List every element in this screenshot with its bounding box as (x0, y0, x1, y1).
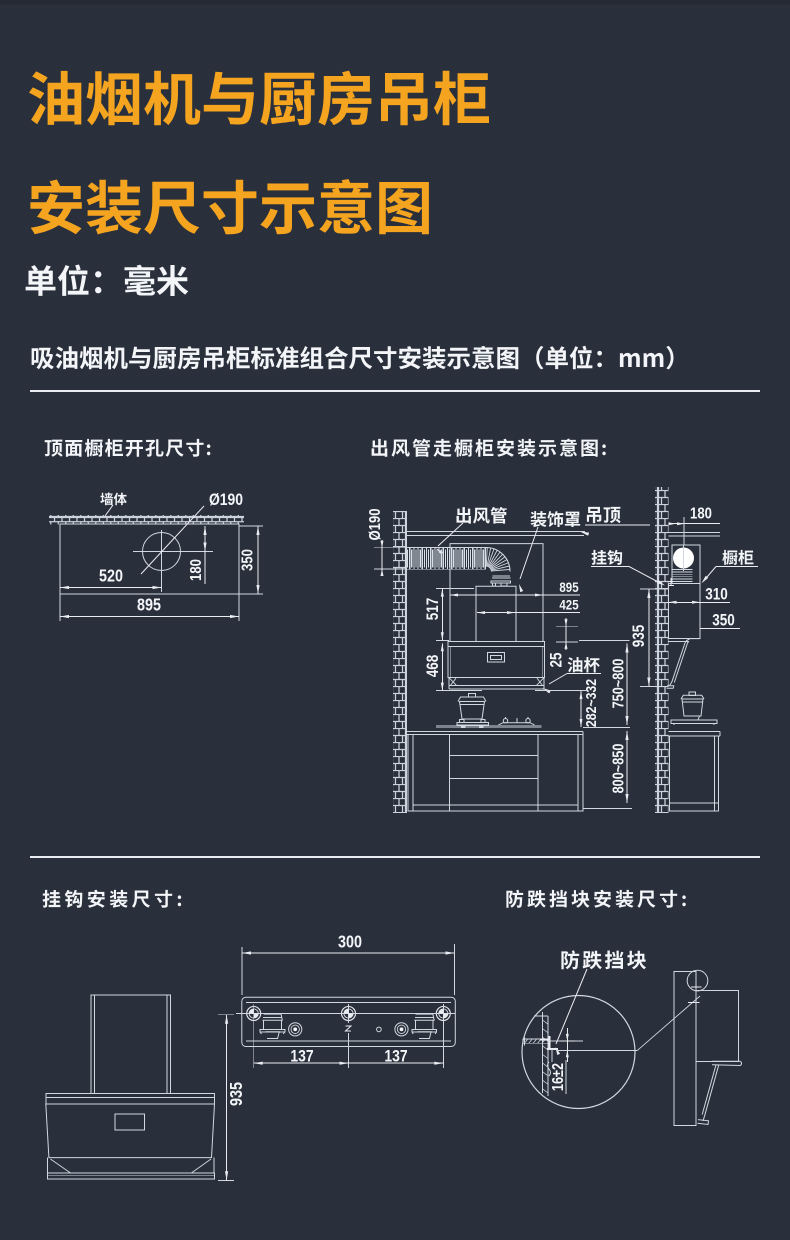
svg-text:310: 310 (705, 585, 728, 604)
svg-text:425: 425 (559, 596, 578, 612)
svg-text:16±2: 16±2 (550, 1063, 567, 1091)
svg-text:520: 520 (99, 567, 123, 586)
svg-text:25: 25 (547, 652, 566, 667)
svg-text:517: 517 (424, 598, 443, 621)
svg-text:137: 137 (290, 1047, 313, 1066)
svg-text:180: 180 (188, 559, 205, 581)
svg-text:Ø190: Ø190 (209, 491, 243, 510)
svg-text:Ø190: Ø190 (367, 508, 384, 540)
svg-text:935: 935 (630, 625, 649, 648)
svg-text:800~850: 800~850 (610, 744, 627, 794)
svg-text:350: 350 (239, 549, 256, 571)
svg-text:180: 180 (690, 505, 712, 522)
svg-text:895: 895 (559, 579, 578, 595)
svg-text:468: 468 (424, 655, 443, 678)
svg-text:350: 350 (712, 611, 735, 630)
svg-text:895: 895 (137, 596, 161, 615)
svg-text:137: 137 (384, 1047, 407, 1066)
svg-text:282~332: 282~332 (583, 679, 599, 728)
svg-text:935: 935 (228, 1082, 247, 1106)
svg-text:750~800: 750~800 (610, 659, 627, 709)
svg-text:300: 300 (338, 933, 362, 952)
